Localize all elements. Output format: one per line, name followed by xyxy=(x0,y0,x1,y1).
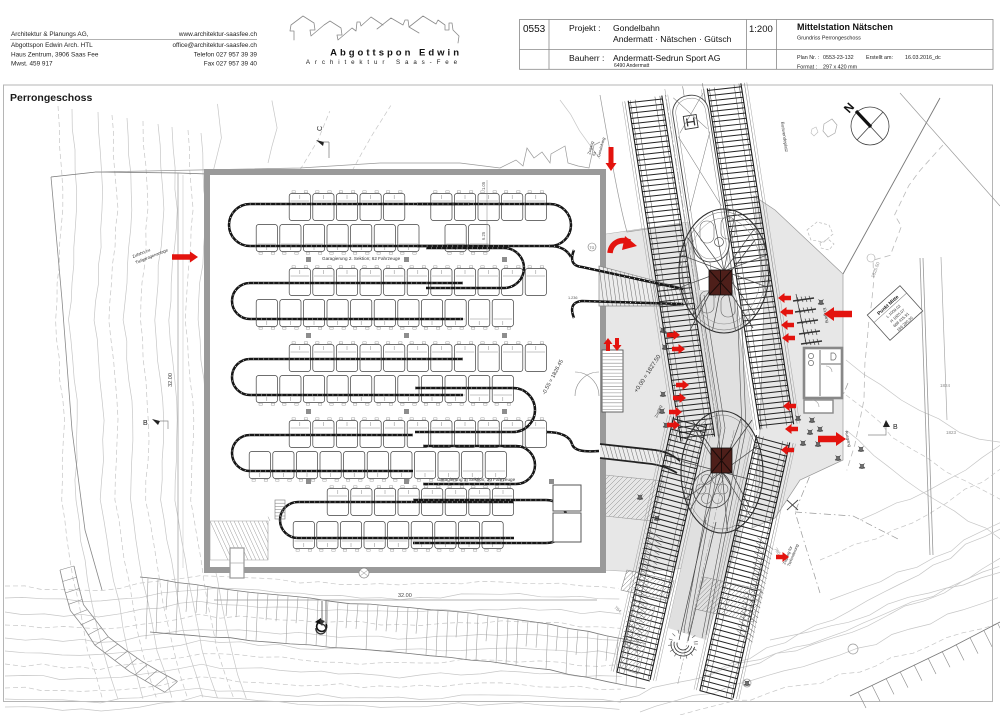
svg-text:1.236: 1.236 xyxy=(568,296,578,300)
svg-text:Mittelstation Nätschen: Mittelstation Nätschen xyxy=(797,22,893,32)
svg-text:Telefon 027 957 39 39: Telefon 027 957 39 39 xyxy=(194,52,258,59)
svg-text:www.architektur-saasfee.ch: www.architektur-saasfee.ch xyxy=(178,31,258,38)
svg-text:6.25: 6.25 xyxy=(481,231,486,240)
svg-text:297 x 420 mm: 297 x 420 mm xyxy=(823,65,858,71)
svg-text:Architektur & Planungs AG,: Architektur & Planungs AG, xyxy=(11,31,89,38)
svg-text:office@architektur-saasfee.ch: office@architektur-saasfee.ch xyxy=(172,42,257,49)
svg-text:Andermatt-Sedrun Sport AG: Andermatt-Sedrun Sport AG xyxy=(613,53,721,63)
svg-text:B: B xyxy=(893,424,898,431)
svg-text:Architektur Saas-Fee: Architektur Saas-Fee xyxy=(306,59,462,66)
svg-text:0553: 0553 xyxy=(523,24,546,35)
svg-text:Bauherr :: Bauherr : xyxy=(569,53,604,63)
svg-text:1:200: 1:200 xyxy=(749,24,773,35)
svg-text:Haus Zentrum, 3906 Saas Fee: Haus Zentrum, 3906 Saas Fee xyxy=(11,52,99,59)
svg-text:B: B xyxy=(143,420,148,427)
svg-text:Garagierung 2. Sektion; 62 Fah: Garagierung 2. Sektion; 62 Fahrzeuge xyxy=(322,256,401,261)
svg-text:TG: TG xyxy=(590,246,595,250)
svg-text:Perrongeschoss: Perrongeschoss xyxy=(10,92,92,104)
svg-text:Gondelbahn: Gondelbahn xyxy=(613,23,660,33)
svg-text:Andermatt · Nätschen · Gütsch: Andermatt · Nätschen · Gütsch xyxy=(613,34,732,44)
svg-text:1.05: 1.05 xyxy=(481,181,486,190)
svg-text:Grundriss Perrongeschoss: Grundriss Perrongeschoss xyxy=(797,36,861,42)
svg-text:32.00: 32.00 xyxy=(168,373,174,387)
svg-text:Format :: Format : xyxy=(797,65,817,71)
svg-text:0553-23-132: 0553-23-132 xyxy=(823,55,854,61)
svg-text:Abgottspon Edwin Arch. HTL: Abgottspon Edwin Arch. HTL xyxy=(11,42,93,49)
svg-text:Mwst. 459 917: Mwst. 459 917 xyxy=(11,61,53,68)
svg-text:1823: 1823 xyxy=(946,430,957,435)
svg-text:16.03.2016_dc: 16.03.2016_dc xyxy=(905,55,941,61)
svg-text:Abgottspon Edwin: Abgottspon Edwin xyxy=(330,48,462,59)
svg-text:6490 Andermatt: 6490 Andermatt xyxy=(614,63,650,69)
svg-text:Erstellt am:: Erstellt am: xyxy=(866,55,893,61)
svg-text:Fax 027 957 39 40: Fax 027 957 39 40 xyxy=(204,61,258,68)
svg-text:Plan Nr. :: Plan Nr. : xyxy=(797,55,819,61)
svg-text:1824: 1824 xyxy=(940,383,951,388)
svg-text:Projekt :: Projekt : xyxy=(569,23,601,33)
svg-text:32.00: 32.00 xyxy=(398,593,412,599)
svg-text:C: C xyxy=(317,126,324,131)
svg-text:Garagierung 1. Sektion; 30 Fah: Garagierung 1. Sektion; 30 Fahrzeuge xyxy=(437,477,516,482)
